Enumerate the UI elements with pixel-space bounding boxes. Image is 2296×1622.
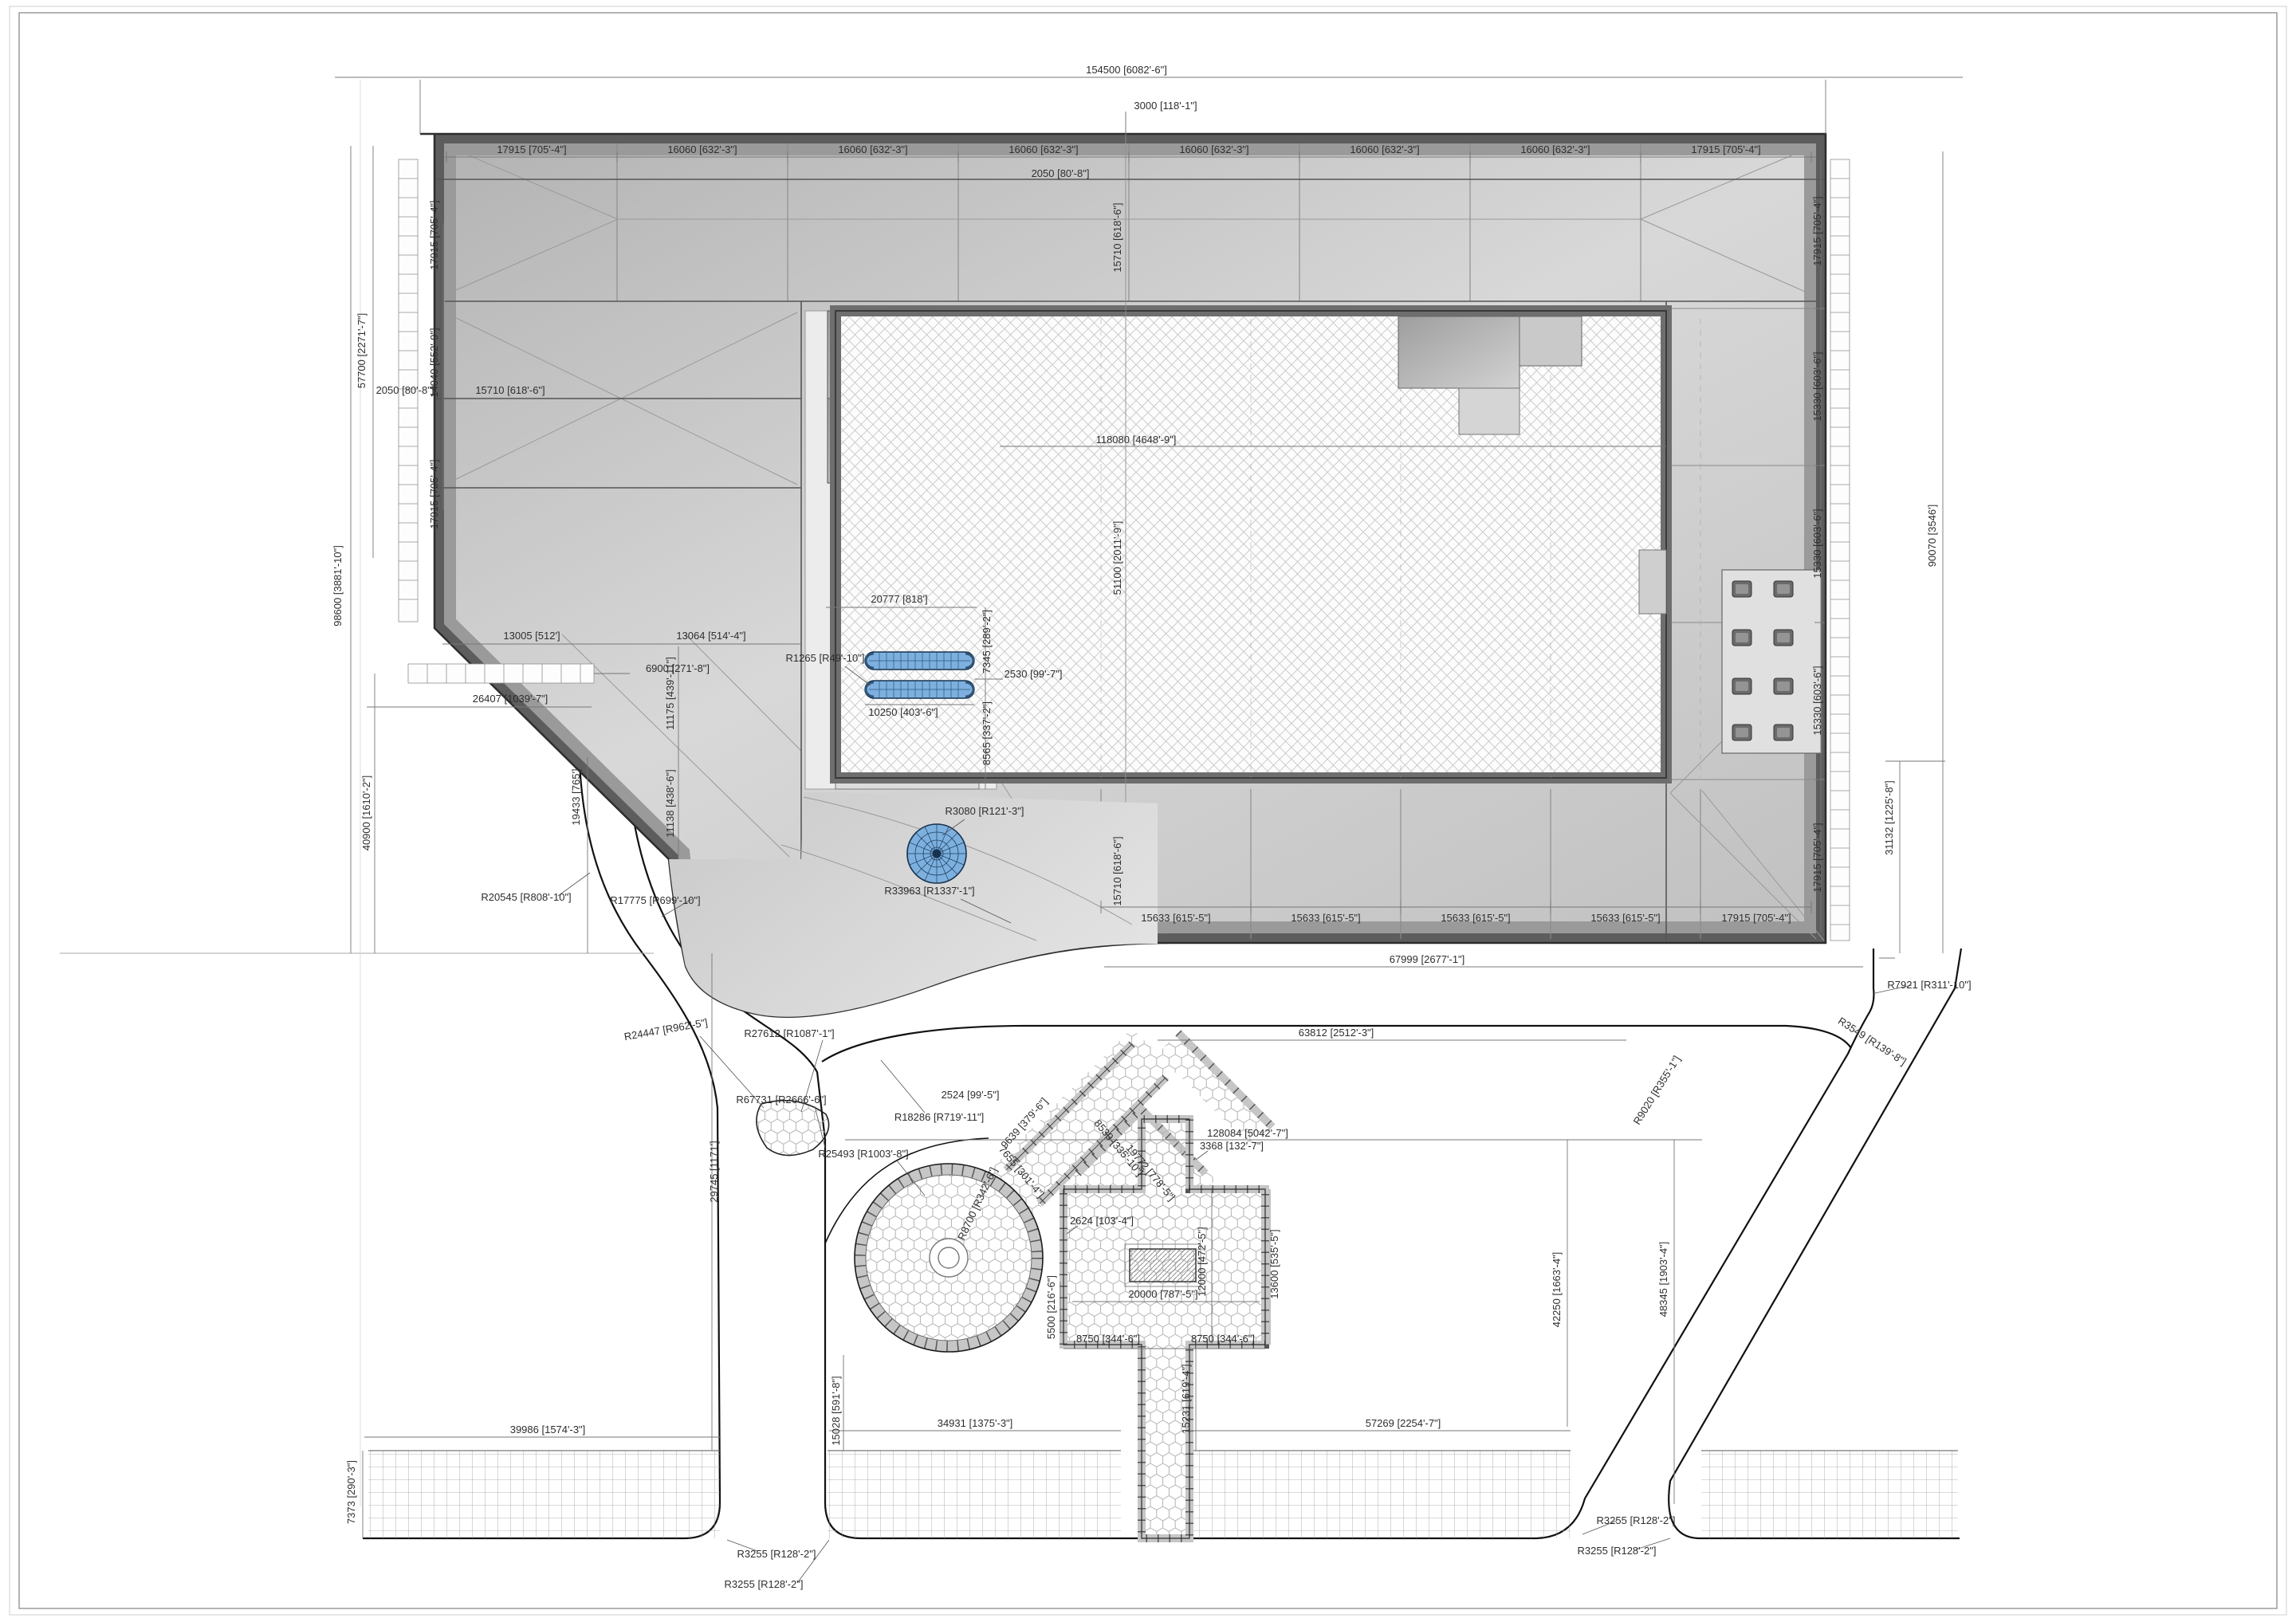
dim-label: 15633 [615'-5"] bbox=[1441, 912, 1510, 924]
dim-label: 48345 [1903'-4"] bbox=[1657, 1242, 1669, 1318]
sidewalk-grid-1 bbox=[368, 1451, 720, 1538]
furniture-room bbox=[1722, 570, 1822, 753]
court-box-e bbox=[1639, 550, 1666, 614]
dim-label: 2524 [99'-5"] bbox=[942, 1089, 1000, 1101]
dim-label: 16060 [632'-3"] bbox=[1179, 143, 1248, 155]
dim-label: 15710 [618'-6"] bbox=[1111, 202, 1123, 272]
dim-label: R3255 [R128'-2"] bbox=[725, 1578, 804, 1590]
dim-label: 26407 [1039'-7"] bbox=[473, 693, 548, 705]
sidewalk-grid-3 bbox=[1189, 1451, 1571, 1538]
dim-label: R3255 [R128'-2"] bbox=[737, 1548, 816, 1560]
dim-label: 17915 [705'-4"] bbox=[1721, 912, 1791, 924]
dim-label: R33963 [R1337'-1"] bbox=[884, 885, 974, 897]
dim-label: 154500 [6082'-6"] bbox=[1086, 64, 1167, 76]
dim-label: R1265 [R49'-10"] bbox=[786, 652, 865, 664]
dim-label: 2050 [80'-8"] bbox=[376, 384, 434, 396]
dim-label: 15028 [591'-8"] bbox=[830, 1376, 842, 1445]
dim-label: R18286 [R719'-11"] bbox=[894, 1111, 984, 1123]
site-plan-canvas: 154500 [6082'-6"] 3000 [118'-1"] 2050 [8… bbox=[0, 0, 2296, 1622]
dim-label: 13600 [535'-5"] bbox=[1268, 1229, 1280, 1298]
dim-label: 17915 [705'-4"] bbox=[428, 200, 440, 269]
court-box-ne-1 bbox=[1398, 316, 1520, 388]
dim-label: 5500 [216'-6"] bbox=[1045, 1275, 1057, 1339]
dim-label: 17915 [705'-4"] bbox=[497, 143, 566, 155]
dim-label: R7921 [R311'-10"] bbox=[1887, 979, 1971, 991]
dim-label: 15710 [618'-6"] bbox=[1111, 836, 1123, 905]
dim-label: 13005 [512'] bbox=[503, 630, 560, 642]
sidewalk-grid-2 bbox=[828, 1451, 1121, 1538]
dim-label: 17915 [705'-4"] bbox=[1691, 143, 1760, 155]
dim-label: 15330 [603'-6"] bbox=[1811, 666, 1823, 735]
dim-label: 3000 [118'-1"] bbox=[1134, 100, 1197, 112]
dim-label: 16060 [632'-3"] bbox=[667, 143, 737, 155]
dim-label: 11175 [439'-11"] bbox=[664, 657, 676, 730]
dim-label: 15330 [603'-6"] bbox=[1811, 351, 1823, 421]
dim-label: 3368 [132'-7"] bbox=[1200, 1140, 1264, 1152]
court-box-ne-3 bbox=[1459, 388, 1520, 434]
dim-label: 16060 [632'-3"] bbox=[1520, 143, 1590, 155]
dim-label: 51100 [2011'-9"] bbox=[1111, 521, 1123, 595]
dim-label: 40900 [1610'-2"] bbox=[360, 776, 372, 851]
dim-label: 2624 [103'-4"] bbox=[1070, 1215, 1134, 1227]
dim-label: 16060 [632'-3"] bbox=[838, 143, 907, 155]
dim-label: 16060 [632'-3"] bbox=[1008, 143, 1078, 155]
dim-label: 15710 [618'-6"] bbox=[475, 384, 545, 396]
dim-label: 42250 [1663'-4"] bbox=[1551, 1252, 1563, 1328]
court-box-ne-2 bbox=[1520, 316, 1582, 366]
dim-label: 29745 [1171'] bbox=[708, 1141, 720, 1202]
dim-label: 10250 [403'-6"] bbox=[868, 706, 938, 718]
dim-label: R3255 [R128'-2"] bbox=[1597, 1514, 1676, 1526]
dim-label: 17915 [705'-4"] bbox=[1811, 823, 1823, 892]
dim-label: 8750 [344'-6"] bbox=[1076, 1333, 1140, 1345]
drawing-sheet: 154500 [6082'-6"] 3000 [118'-1"] 2050 [8… bbox=[0, 0, 2296, 1622]
dim-label: 2530 [99'-7"] bbox=[1005, 668, 1063, 680]
dim-label: 17915 [705'-4"] bbox=[1811, 196, 1823, 265]
dim-label: 8750 [344'-6"] bbox=[1191, 1333, 1255, 1345]
dim-label: 8565 [337'-2"] bbox=[981, 701, 993, 765]
dim-label: 98600 [3881'-10"] bbox=[332, 545, 344, 626]
fountain-dome bbox=[907, 824, 966, 883]
dim-label: R67731 [R2666'-6"] bbox=[736, 1094, 826, 1106]
dim-label: 19433 [765'] bbox=[570, 768, 582, 825]
dim-label: 16060 [632'-3"] bbox=[1350, 143, 1419, 155]
cross-center-feature bbox=[1130, 1249, 1196, 1282]
dim-label: 12000 [472'-5"] bbox=[1196, 1227, 1208, 1296]
dim-label: 34931 [1375'-3"] bbox=[938, 1417, 1013, 1429]
dim-label: 20777 [818'] bbox=[871, 593, 927, 605]
dim-label: 63812 [2512'-3"] bbox=[1299, 1027, 1374, 1039]
dim-label: 15633 [615'-5"] bbox=[1291, 912, 1360, 924]
dim-label: 17915 [705'-4"] bbox=[428, 459, 440, 528]
dim-label: 15633 [615'-5"] bbox=[1141, 912, 1210, 924]
dim-label: R27612 [R1087'-1"] bbox=[744, 1027, 834, 1039]
dim-label: 13064 [514'-4"] bbox=[676, 630, 745, 642]
dim-label: 14040 [552'-9"] bbox=[428, 328, 440, 397]
dim-label: 15330 [603'-6"] bbox=[1811, 509, 1823, 578]
dim-label: 67999 [2677'-1"] bbox=[1390, 953, 1465, 965]
circular-plaza bbox=[855, 1164, 1043, 1352]
dim-label: 57700 [2271'-7"] bbox=[356, 313, 368, 389]
sidewalk-grid-4 bbox=[1701, 1451, 1958, 1538]
dim-label: R3255 [R128'-2"] bbox=[1578, 1545, 1657, 1557]
dim-label: 20000 [787'-5"] bbox=[1128, 1288, 1197, 1300]
dim-label: R3080 [R121'-3"] bbox=[946, 805, 1024, 817]
dim-label: 15231 [619'-4"] bbox=[1180, 1364, 1192, 1433]
dim-label: 39986 [1574'-3"] bbox=[510, 1424, 586, 1435]
dim-label: 11138 [438'-6"] bbox=[664, 769, 676, 837]
dim-label: 90070 [3546'] bbox=[1926, 505, 1938, 567]
dim-label: 6900 [271'-8"] bbox=[646, 662, 710, 674]
dim-label: R17775 [R699'-10"] bbox=[610, 894, 700, 906]
dim-label: R25493 [R1003'-8"] bbox=[818, 1148, 908, 1160]
dim-label: 118080 [4648'-9"] bbox=[1096, 434, 1177, 446]
dim-label: 7373 [290'-3"] bbox=[345, 1460, 357, 1524]
dim-label: 57269 [2254'-7"] bbox=[1366, 1417, 1441, 1429]
dim-label: R20545 [R808'-10"] bbox=[481, 891, 571, 903]
dim-label: 15633 [615'-5"] bbox=[1590, 912, 1660, 924]
dim-label: 128084 [5042'-7"] bbox=[1207, 1127, 1288, 1139]
dim-label: 31132 [1225'-8"] bbox=[1883, 780, 1895, 855]
dim-label: 7345 [289'-2"] bbox=[981, 610, 993, 674]
dim-label: 2050 [80'-8"] bbox=[1032, 167, 1090, 179]
